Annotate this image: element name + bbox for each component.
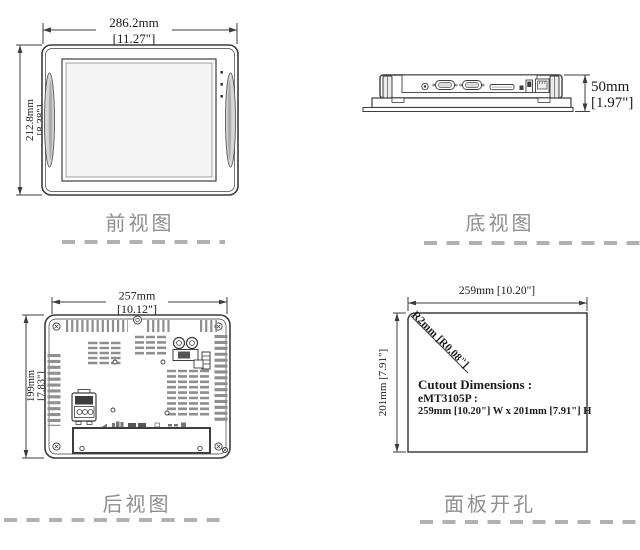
rear-view-label: 后视图 xyxy=(52,488,222,517)
front-view-drawing: 286.2mm [11.27"] 212.8mm [8.38"] xyxy=(12,8,252,203)
arrow-up xyxy=(18,45,23,53)
left-grip xyxy=(45,73,55,167)
bottom-height-mm: 50mm xyxy=(591,79,630,95)
sd-slot-icon xyxy=(490,85,514,90)
arrow-left xyxy=(408,301,416,306)
cutout-view-drawing: 259mm [10.20"] 201mm [7.91"] R2mm [R0.08… xyxy=(355,283,640,483)
display-screen xyxy=(66,63,212,177)
rear-width-in: [10.12"] xyxy=(117,302,157,316)
front-view-label: 前视图 xyxy=(55,207,225,236)
top-center-screw-icon xyxy=(134,316,142,324)
cutout-note-title: Cutout Dimensions : xyxy=(418,377,532,392)
cutout-width-dimension-line xyxy=(408,297,587,311)
dimension-drawing-page: 286.2mm [11.27"] 212.8mm [8.38"] xyxy=(0,0,640,550)
arrow-up xyxy=(395,313,400,321)
cutout-note-model: eMT3105P : xyxy=(418,393,478,405)
separator-dash-front xyxy=(62,240,225,244)
arrow-right xyxy=(229,27,237,32)
bottom-view-drawing: 50mm [1.97"] xyxy=(358,55,640,155)
arrow-up xyxy=(583,75,588,83)
dip-switch-icon xyxy=(520,86,524,91)
front-width-in: [11.27"] xyxy=(113,31,156,46)
cutout-view-label: 面板开孔 xyxy=(405,488,575,517)
power-terminal-icon xyxy=(72,390,96,425)
arrow-left xyxy=(52,300,60,305)
panel-surface-strip xyxy=(363,108,573,112)
arrow-up xyxy=(24,315,29,323)
arrow-down xyxy=(395,444,400,452)
cutout-note-size: 259mm [10.20"] W x 201mm [7.91"] H xyxy=(418,406,591,417)
arrow-down xyxy=(18,187,23,195)
separator-dash-cutout xyxy=(420,520,640,524)
separator-dash-bottom xyxy=(424,241,640,245)
rear-height-mm: 199mm xyxy=(26,370,37,402)
front-width-mm: 286.2mm xyxy=(109,15,158,30)
connector-bay xyxy=(73,428,210,453)
arrow-right xyxy=(219,300,227,305)
cutout-height-dim: 201mm [7.91"] xyxy=(377,349,389,416)
arrow-right xyxy=(579,301,587,306)
serial-port-icon xyxy=(460,81,484,90)
arrow-down xyxy=(24,450,29,458)
audio-jack-icon xyxy=(422,83,428,89)
cutout-width-dim: 259mm [10.20"] xyxy=(459,285,535,297)
bottom-view-label: 底视图 xyxy=(415,207,585,236)
right-grip xyxy=(226,73,236,167)
separator-dash-rear xyxy=(4,518,223,522)
usb-port-icon xyxy=(526,80,533,93)
rear-view-drawing: 257mm [10.12"] 199mm [7.83"] xyxy=(8,283,252,483)
edge-screw-icon xyxy=(222,447,227,452)
arrow-down xyxy=(583,104,588,112)
serial-port-icon xyxy=(433,81,457,90)
bottom-height-in: [1.97"] xyxy=(591,95,633,111)
cutout-height-dimension-line xyxy=(393,313,406,452)
rear-width-mm: 257mm xyxy=(119,289,156,303)
arrow-left xyxy=(43,27,51,32)
ethernet-port-icon xyxy=(536,79,550,93)
